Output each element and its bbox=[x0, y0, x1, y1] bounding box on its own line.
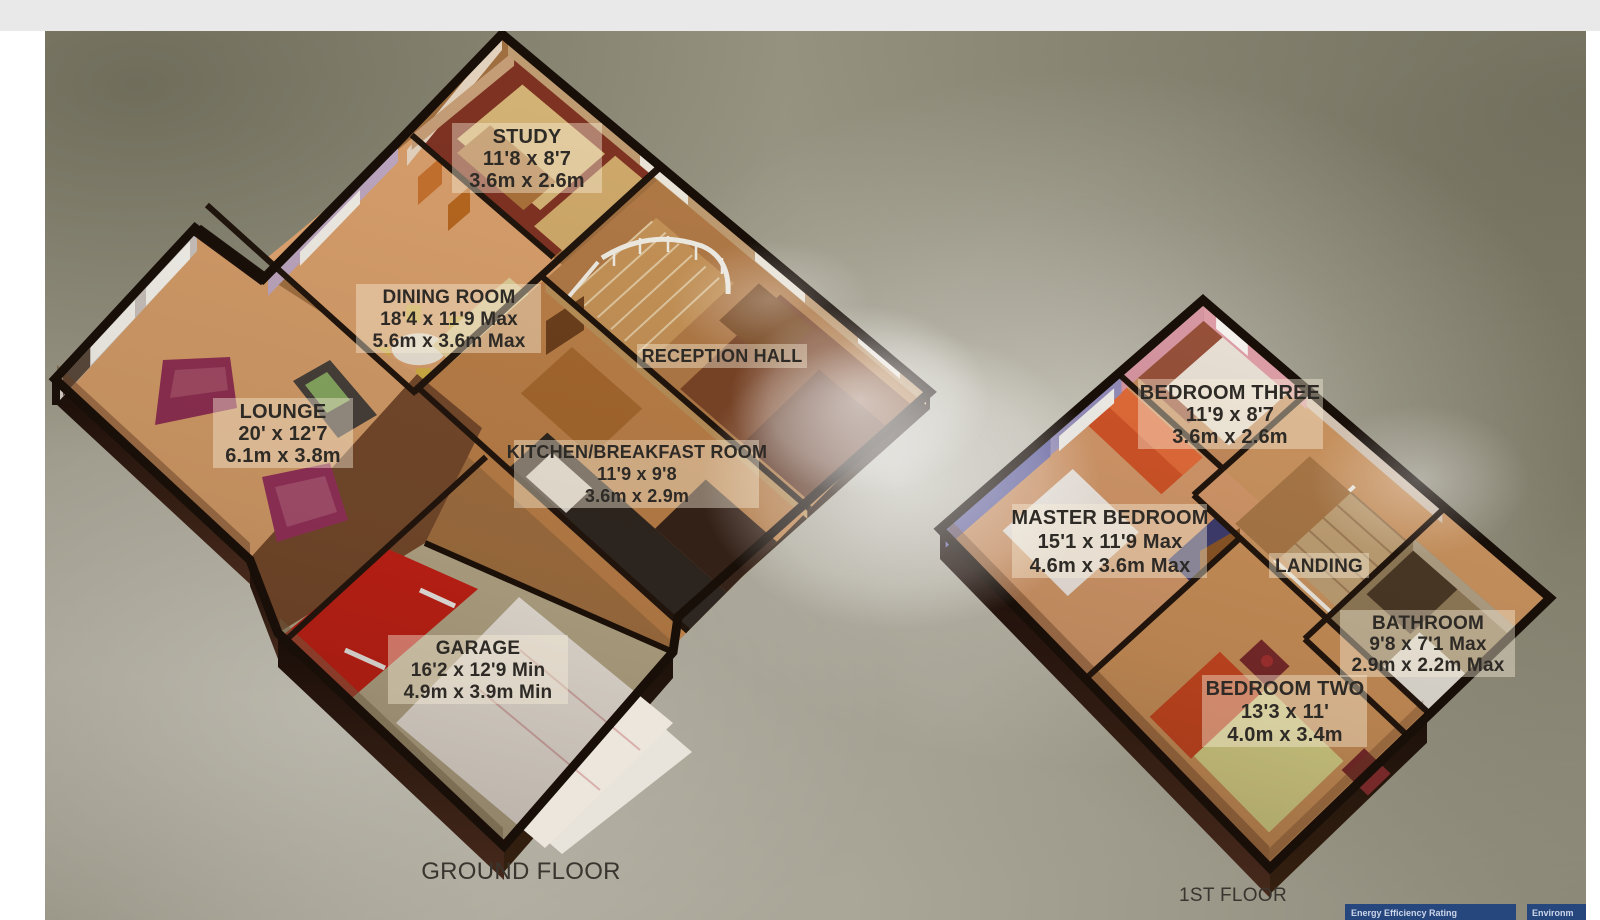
svg-text:4.9m x 3.9m Min: 4.9m x 3.9m Min bbox=[404, 682, 553, 703]
svg-text:Energy Efficiency Rating: Energy Efficiency Rating bbox=[1351, 908, 1457, 918]
svg-text:4.0m x 3.4m: 4.0m x 3.4m bbox=[1227, 724, 1343, 746]
svg-text:16'2 x 12'9 Min: 16'2 x 12'9 Min bbox=[411, 660, 546, 681]
svg-text:GROUND FLOOR: GROUND FLOOR bbox=[421, 858, 621, 885]
svg-text:BEDROOM TWO: BEDROOM TWO bbox=[1206, 678, 1365, 700]
svg-text:3.6m x 2.6m: 3.6m x 2.6m bbox=[1172, 426, 1288, 448]
svg-text:MASTER BEDROOM: MASTER BEDROOM bbox=[1011, 507, 1208, 529]
svg-text:3.6m x 2.6m: 3.6m x 2.6m bbox=[469, 170, 585, 192]
svg-text:KITCHEN/BREAKFAST ROOM: KITCHEN/BREAKFAST ROOM bbox=[507, 442, 767, 462]
svg-text:DINING ROOM: DINING ROOM bbox=[382, 287, 515, 308]
svg-text:GARAGE: GARAGE bbox=[436, 638, 521, 659]
svg-text:RECEPTION HALL: RECEPTION HALL bbox=[642, 346, 803, 366]
svg-text:11'9 x 8'7: 11'9 x 8'7 bbox=[1186, 404, 1274, 426]
svg-text:LANDING: LANDING bbox=[1275, 556, 1363, 577]
svg-text:BEDROOM THREE: BEDROOM THREE bbox=[1140, 382, 1320, 404]
svg-text:18'4 x 11'9 Max: 18'4 x 11'9 Max bbox=[380, 309, 518, 330]
svg-text:2.9m x 2.2m Max: 2.9m x 2.2m Max bbox=[1352, 655, 1505, 676]
svg-text:STUDY: STUDY bbox=[493, 126, 562, 148]
svg-text:3.6m x 2.9m: 3.6m x 2.9m bbox=[585, 486, 689, 506]
svg-text:15'1 x 11'9 Max: 15'1 x 11'9 Max bbox=[1038, 531, 1183, 553]
svg-text:BATHROOM: BATHROOM bbox=[1372, 613, 1484, 634]
svg-text:20' x 12'7: 20' x 12'7 bbox=[238, 423, 327, 445]
svg-text:Environm: Environm bbox=[1532, 908, 1574, 918]
svg-text:9'8 x 7'1 Max: 9'8 x 7'1 Max bbox=[1369, 634, 1487, 655]
svg-text:6.1m x 3.8m: 6.1m x 3.8m bbox=[225, 445, 341, 467]
svg-text:13'3 x 11': 13'3 x 11' bbox=[1241, 701, 1329, 723]
svg-text:4.6m x 3.6m Max: 4.6m x 3.6m Max bbox=[1030, 555, 1191, 577]
svg-text:11'9 x 9'8: 11'9 x 9'8 bbox=[597, 464, 677, 484]
svg-text:5.6m x 3.6m Max: 5.6m x 3.6m Max bbox=[373, 331, 526, 352]
svg-text:LOUNGE: LOUNGE bbox=[240, 401, 327, 423]
svg-text:11'8 x 8'7: 11'8 x 8'7 bbox=[483, 148, 571, 170]
svg-text:1ST FLOOR: 1ST FLOOR bbox=[1179, 885, 1287, 906]
